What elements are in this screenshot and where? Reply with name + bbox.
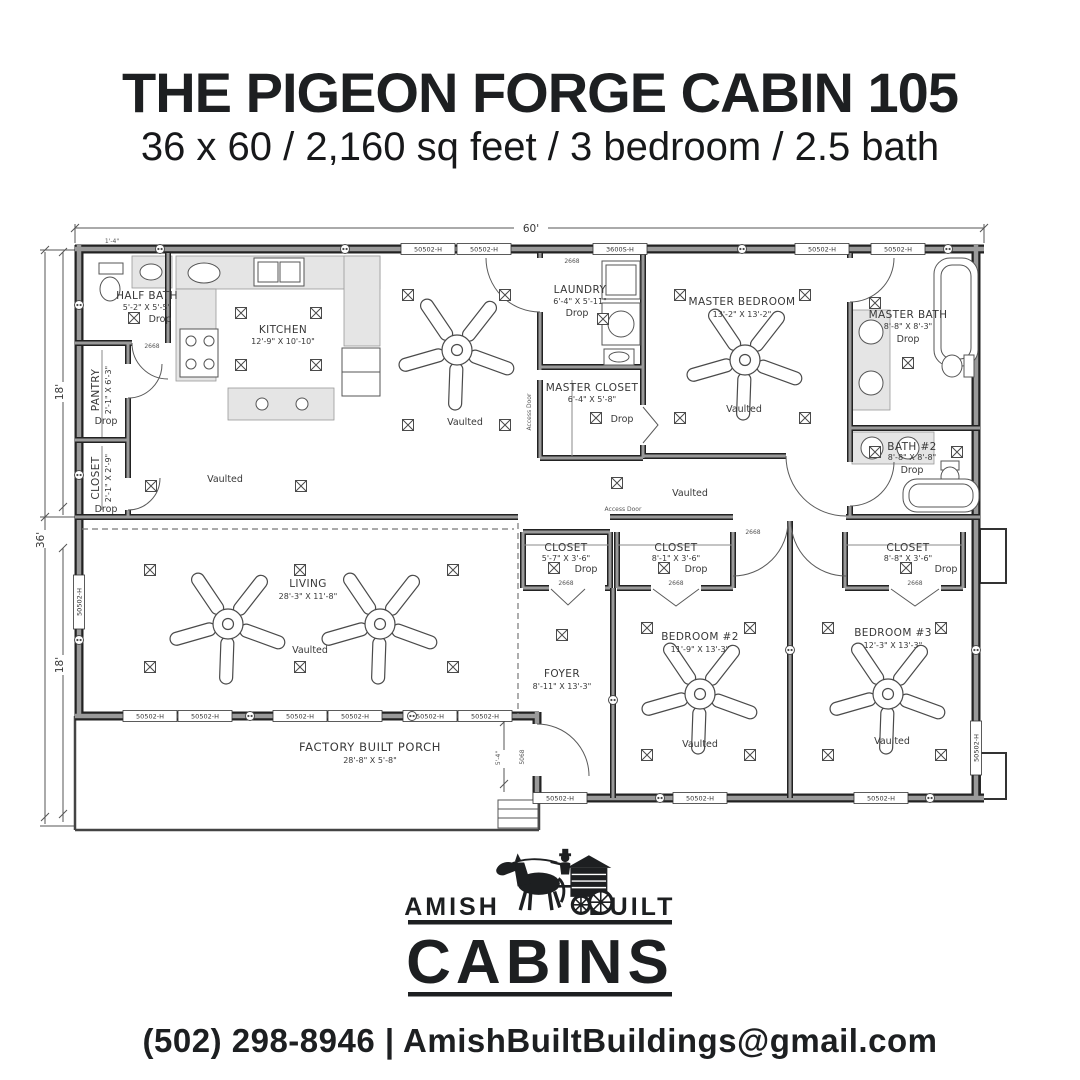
room-laundry-dims: 6'-4" X 5'-11" (553, 297, 607, 306)
right-bumpout-upper (980, 529, 1006, 583)
page-subtitle: 36 x 60 / 2,160 sq feet / 3 bedroom / 2.… (141, 125, 939, 169)
logo-divider-bottom (408, 992, 672, 997)
room-closet-bed2: CLOSET (654, 542, 697, 554)
room-closet-foyer: CLOSET (544, 542, 587, 554)
laundry-tub (604, 349, 634, 365)
window-label: 50502-H (414, 246, 442, 254)
dim-depth: 36' (35, 532, 47, 548)
bath2-tub (903, 479, 979, 512)
room-bedroom3: BEDROOM #3 (854, 627, 932, 639)
room-master-bedroom-note: Vaulted (726, 404, 762, 415)
ceiling-fan-icon (641, 641, 759, 755)
room-master-bedroom-dims: 13'-2" X 13'-2" (713, 310, 772, 319)
logo: AMISH BUILT CABINS (404, 849, 675, 997)
logo-cabins: CABINS (406, 928, 674, 997)
access-door-label: Access Door (605, 506, 642, 513)
ceiling-fan-icon (169, 571, 287, 685)
room-half-bath: HALF BATH (116, 290, 178, 302)
window-label: 50502-H (341, 713, 369, 721)
room-closet-foyer-note: Drop (575, 564, 598, 575)
floor-plan-graphic: THE PIGEON FORGE CABIN 105 36 x 60 / 2,1… (0, 0, 1080, 1080)
room-closet-bed3-note: Drop (935, 564, 958, 575)
half-bath-sink (140, 264, 162, 280)
window-label: 50502-H (286, 713, 314, 721)
room-bath2: BATH #2 (887, 441, 937, 453)
room-half-bath-dims: 5'-2" X 5'-5" (123, 303, 171, 312)
room-master-closet-dims: 6'-4" X 5'-8" (568, 395, 616, 404)
room-closet-bed2-note: Drop (685, 564, 708, 575)
dim-porch-door: 5'-4" (495, 751, 502, 765)
window-label: 50502-H (470, 246, 498, 254)
room-laundry: LAUNDRY (554, 284, 607, 296)
vaulted-label: Vaulted (672, 488, 708, 499)
room-bath2-note: Drop (901, 465, 924, 476)
room-living: LIVING (289, 578, 327, 590)
room-master-closet: MASTER CLOSET (546, 382, 639, 394)
room-bedroom2: BEDROOM #2 (661, 631, 739, 643)
stove (180, 329, 218, 377)
room-bedroom3-dims: 12'-3" X 13'-3" (864, 641, 923, 650)
window-label: 50502-H (973, 734, 981, 762)
room-master-bedroom: MASTER BEDROOM (689, 296, 796, 308)
island-light (256, 398, 268, 410)
window-label: 50502-H (867, 795, 895, 803)
page-title: THE PIGEON FORGE CABIN 105 (122, 61, 958, 124)
room-labels: HALF BATH 5'-2" X 5'-5" Drop PANTRY 2'-1… (90, 258, 957, 765)
kitchen-sink (254, 258, 304, 286)
window-label: 50502-H (884, 246, 912, 254)
door-size-label: 2668 (144, 343, 159, 350)
door-size-label: 2668 (907, 580, 922, 587)
room-master-bath-note: Drop (897, 334, 920, 345)
master-sink (859, 371, 883, 395)
corner-sink (188, 263, 220, 283)
room-closet-hall-dims: 2'-1" X 2'-9" (104, 454, 113, 502)
door-size-label: 2668 (558, 580, 573, 587)
door-size-label: 2668 (745, 529, 760, 536)
flyer: THE PIGEON FORGE CABIN 105 36 x 60 / 2,1… (0, 0, 1080, 1080)
room-living-dims: 28'-3" X 11'-8" (279, 592, 338, 601)
window-label: 50502-H (546, 795, 574, 803)
room-closet-bed2-dims: 8'-1" X 3'-6" (652, 554, 700, 563)
logo-amish: AMISH (404, 893, 500, 921)
room-master-bath: MASTER BATH (869, 309, 948, 321)
room-closet-bed3: CLOSET (886, 542, 929, 554)
room-bedroom3-note: Vaulted (874, 736, 910, 747)
room-kitchen: KITCHEN (259, 324, 307, 336)
room-bath2-dims: 8'-8" X 8'-8" (888, 453, 936, 462)
room-pantry: PANTRY (90, 369, 102, 412)
room-bedroom2-note: Vaulted (682, 739, 718, 750)
room-bedroom2-dims: 11'-9" X 13'-3" (671, 645, 730, 654)
island-light (296, 398, 308, 410)
room-foyer-dims: 8'-11" X 13'-3" (533, 682, 592, 691)
horse-and-wagon-icon (496, 849, 612, 914)
room-pantry-dims: 2'-1" X 6'-3" (104, 366, 113, 414)
room-laundry-note: Drop (566, 308, 589, 319)
dim-width: 60' (523, 223, 539, 235)
room-closet-hall-note: Drop (95, 504, 118, 515)
room-foyer: FOYER (544, 668, 580, 680)
counters (132, 256, 934, 464)
access-door-label: Access Door (526, 393, 533, 430)
fridge (342, 348, 380, 396)
room-porch: FACTORY BUILT PORCH (299, 740, 441, 754)
washer (602, 261, 640, 299)
dim-module-lower: 18' (54, 657, 66, 673)
room-master-bath-dims: 8'-8" X 8'-3" (884, 322, 932, 331)
room-closet-hall: CLOSET (90, 456, 102, 499)
dim-module-upper: 18' (54, 384, 66, 400)
vaulted-label: Vaulted (447, 417, 483, 428)
dim-corner-offset: 1'-4" (105, 238, 119, 245)
room-half-bath-note: Drop (149, 314, 172, 325)
window-label: 50502-H (471, 713, 499, 721)
ceiling-fan-icon (398, 297, 516, 411)
vaulted-label: Vaulted (207, 474, 243, 485)
ceiling-fan-icon (321, 571, 439, 685)
window-label: 50502-H (76, 588, 84, 616)
window-label: 50502-H (191, 713, 219, 721)
room-kitchen-dims: 12'-9" X 10'-10" (251, 337, 315, 346)
door-size-label: 2668 (564, 258, 579, 265)
front-door-size-label: 5068 (519, 749, 526, 764)
right-bumpout-lower (980, 753, 1006, 799)
room-master-closet-note: Drop (611, 414, 634, 425)
kitchen-window-label: 3600S-H (606, 246, 634, 254)
door-size-label: 2668 (668, 580, 683, 587)
window-label: 50502-H (136, 713, 164, 721)
master-toilet (942, 355, 974, 377)
room-porch-dims: 28'-8" X 5'-8" (343, 756, 397, 765)
master-sink (859, 320, 883, 344)
room-living-note: Vaulted (292, 645, 328, 656)
window-label: 50502-H (686, 795, 714, 803)
room-pantry-note: Drop (95, 416, 118, 427)
room-closet-bed3-dims: 8'-8" X 3'-6" (884, 554, 932, 563)
contact-info: (502) 298-8946 | AmishBuiltBuildings@gma… (143, 1022, 938, 1059)
logo-divider-top (408, 920, 672, 925)
room-closet-foyer-dims: 5'-7" X 3'-6" (542, 554, 590, 563)
window-label: 50502-H (416, 713, 444, 721)
window-label: 50502-H (808, 246, 836, 254)
